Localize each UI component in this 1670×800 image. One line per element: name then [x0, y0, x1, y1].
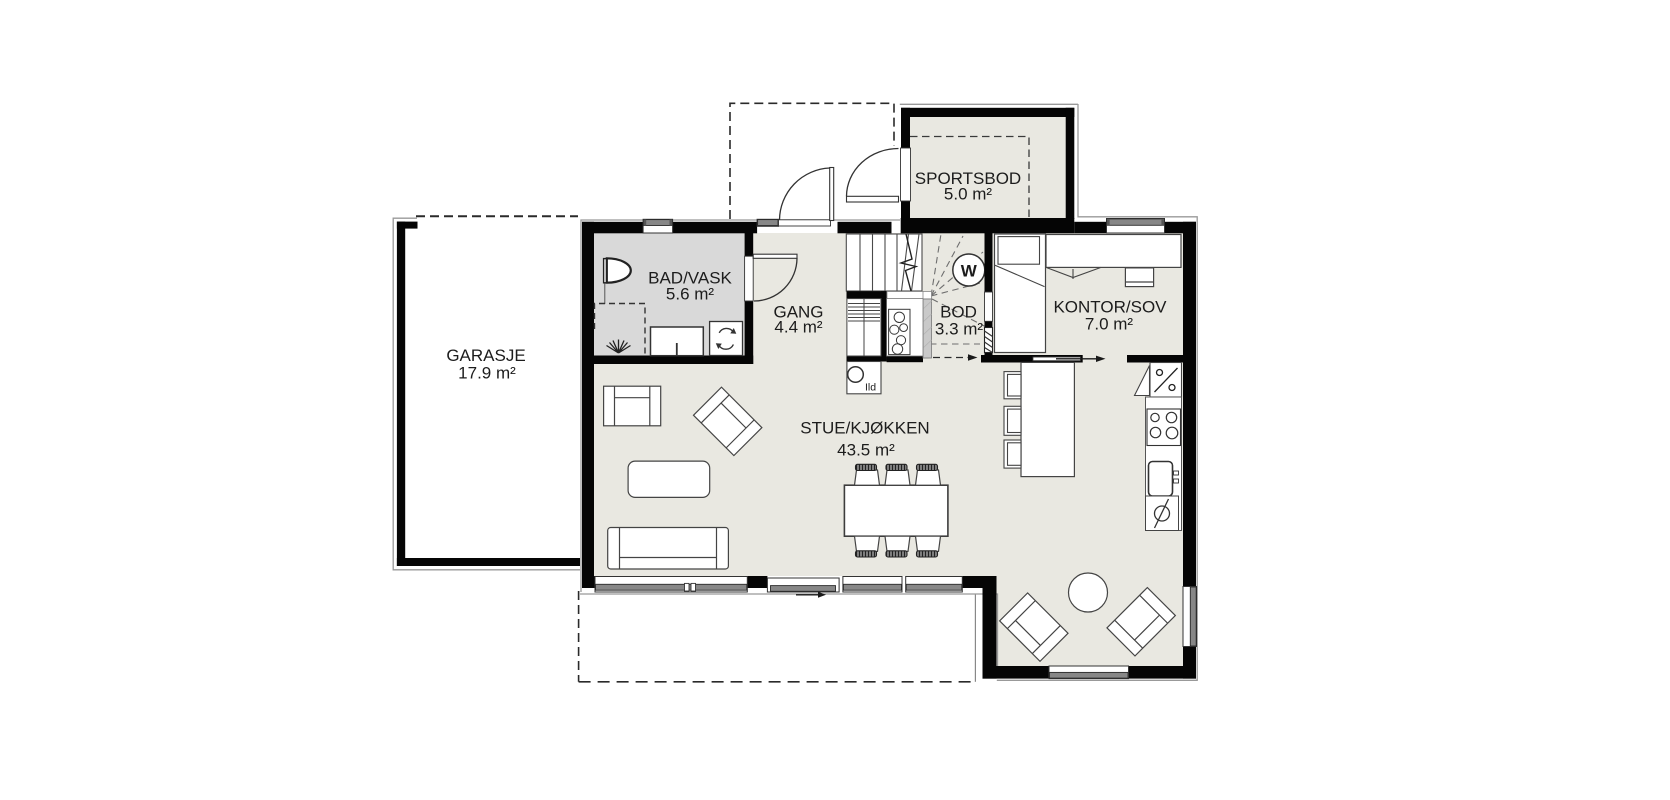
svg-text:4.4 m²: 4.4 m²	[774, 318, 823, 337]
svg-text:3.3 m²: 3.3 m²	[935, 320, 984, 339]
svg-text:17.9 m²: 17.9 m²	[458, 364, 516, 383]
svg-text:Ild: Ild	[865, 382, 876, 394]
svg-text:W: W	[961, 262, 978, 281]
svg-text:43.5 m²: 43.5 m²	[837, 441, 895, 460]
svg-text:STUE/KJØKKEN: STUE/KJØKKEN	[800, 419, 929, 438]
svg-text:GARASJE: GARASJE	[446, 346, 525, 365]
svg-text:7.0 m²: 7.0 m²	[1085, 314, 1134, 333]
svg-text:5.6 m²: 5.6 m²	[666, 285, 715, 304]
svg-text:5.0 m²: 5.0 m²	[944, 185, 993, 204]
